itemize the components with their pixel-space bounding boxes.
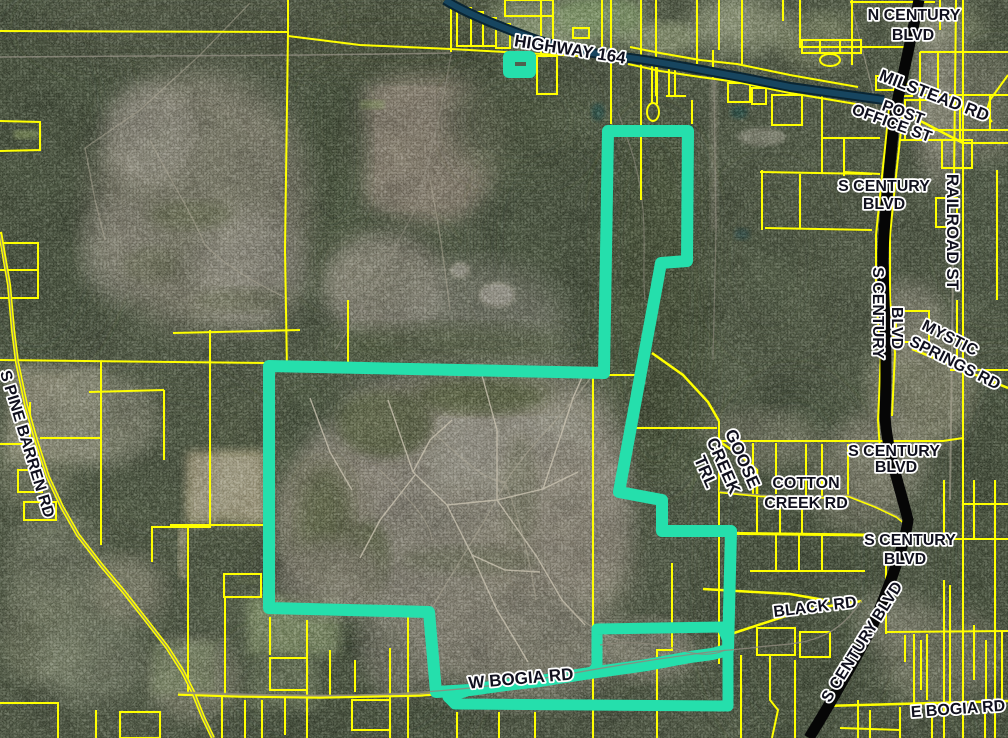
svg-text:S CENTURY: S CENTURY <box>848 443 940 460</box>
svg-text:S CENTURY: S CENTURY <box>864 532 956 549</box>
svg-text:BLVD: BLVD <box>892 27 934 44</box>
svg-text:BLVD: BLVD <box>875 459 917 476</box>
svg-text:S CENTURY: S CENTURY <box>869 267 886 359</box>
svg-text:CREEK RD: CREEK RD <box>764 495 848 512</box>
svg-text:S CENTURY: S CENTURY <box>838 178 930 195</box>
svg-text:COTTON: COTTON <box>772 475 839 492</box>
svg-text:BLVD: BLVD <box>888 307 905 349</box>
svg-text:BLVD: BLVD <box>863 196 905 213</box>
svg-text:BLVD: BLVD <box>884 551 926 568</box>
svg-text:N CENTURY: N CENTURY <box>868 7 961 24</box>
svg-text:RAILROAD ST: RAILROAD ST <box>943 174 962 291</box>
